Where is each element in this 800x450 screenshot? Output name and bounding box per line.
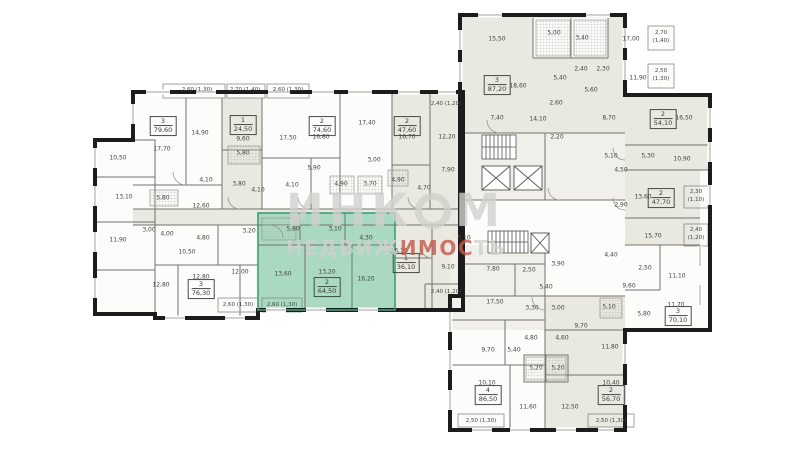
floorplan-drawing [0,0,800,450]
floorplan-canvas: 10,5013,1011,9012,8017,7014,905,8012,604… [0,0,800,450]
highlighted-apartment[interactable] [258,213,395,310]
